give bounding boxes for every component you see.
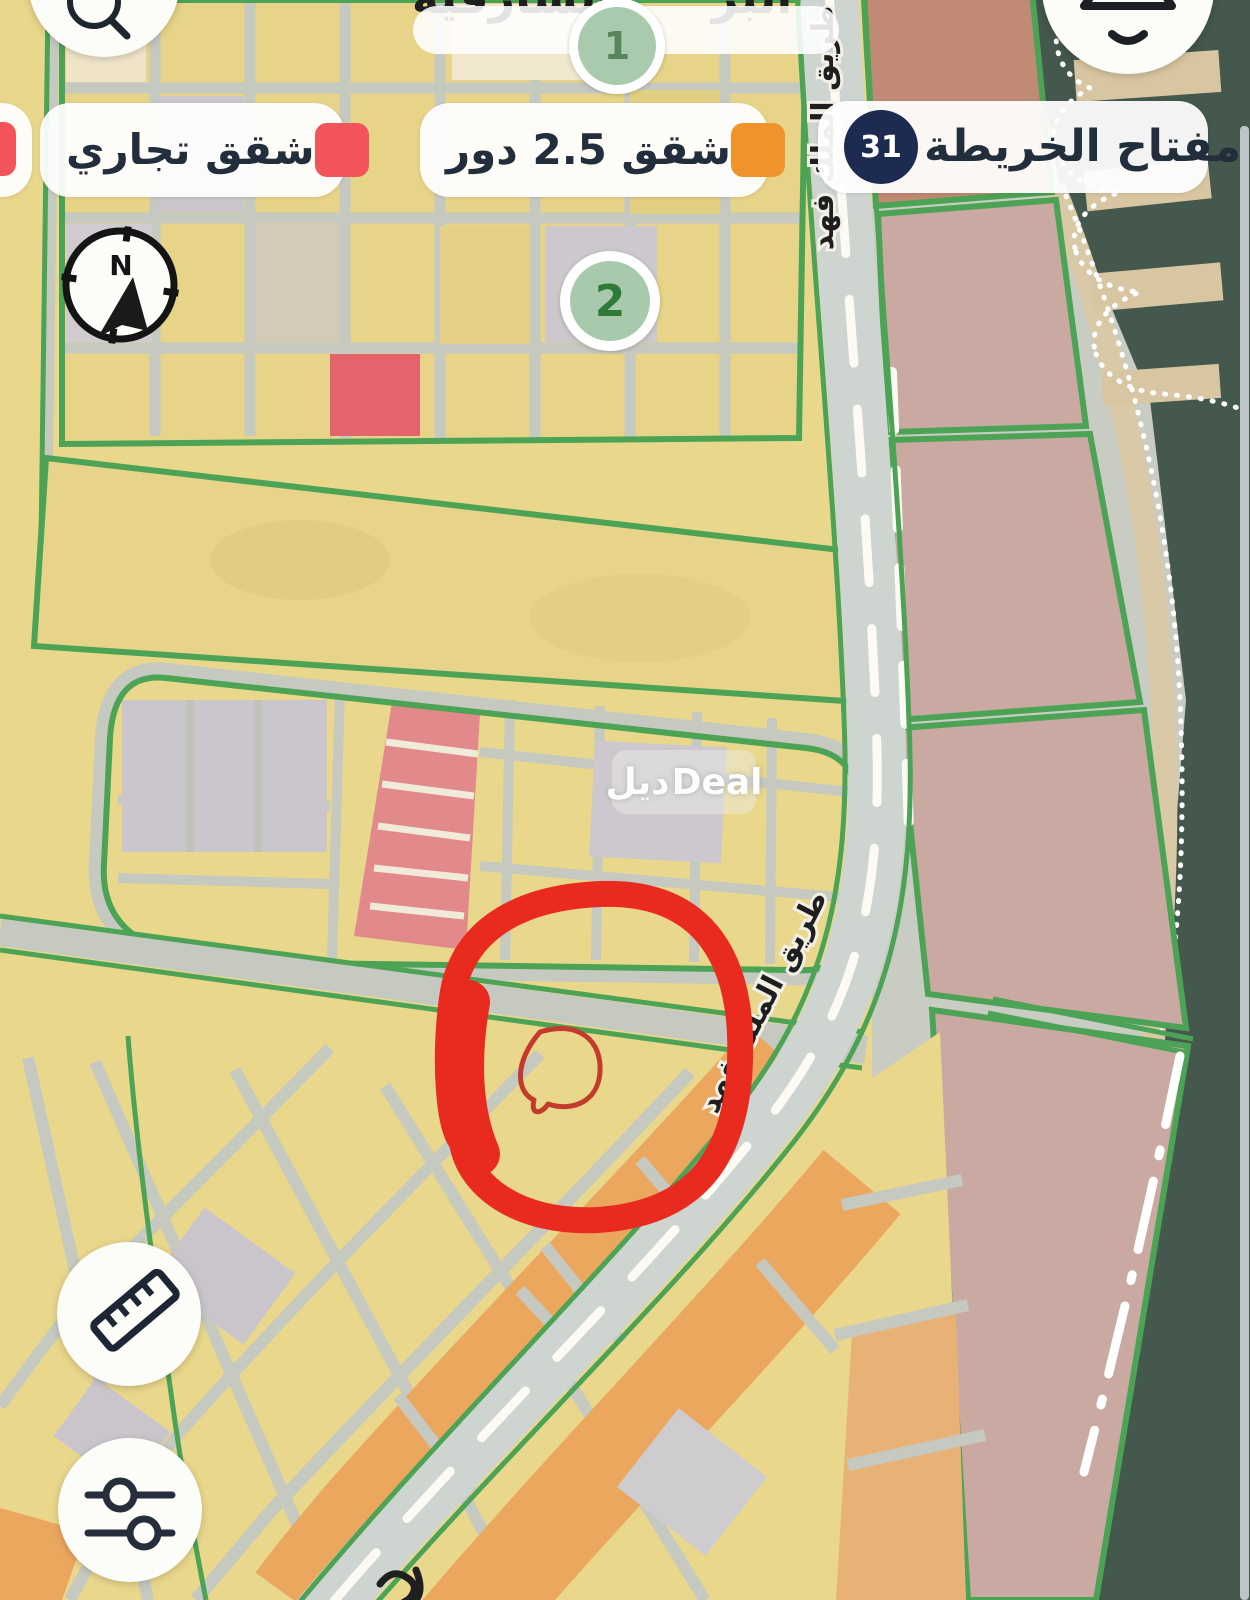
legend-label-25-floor: شقق 2.5 دور bbox=[446, 129, 731, 171]
map-marker-2[interactable]: 2 bbox=[560, 251, 660, 351]
map-app-screen: طريق الملك فهد طريق الملك فهد الشارقية ا… bbox=[0, 0, 1250, 1600]
legend-item-commercial[interactable]: شقق تجاري bbox=[40, 103, 344, 197]
map-style-icon bbox=[1042, 0, 1214, 74]
search-button[interactable] bbox=[28, 0, 180, 57]
filters-button[interactable] bbox=[58, 1438, 202, 1582]
ruler-icon bbox=[57, 1242, 201, 1386]
watermark-arabic: ديل bbox=[605, 762, 669, 803]
compass-icon: N bbox=[58, 223, 182, 347]
map-key-count-badge: 31 bbox=[844, 110, 918, 184]
scrollbar[interactable] bbox=[1240, 126, 1249, 1600]
compass-button[interactable]: N bbox=[58, 223, 182, 347]
legend-item-cut[interactable] bbox=[0, 103, 32, 197]
search-icon bbox=[28, 0, 180, 57]
map-key-label: مفتاح الخريطة bbox=[924, 125, 1241, 169]
compass-north-letter: N bbox=[109, 249, 132, 282]
filters-icon bbox=[58, 1438, 202, 1582]
red-parcel bbox=[330, 354, 420, 436]
legend-swatch-commercial bbox=[315, 123, 369, 177]
map-marker-1-number: 1 bbox=[578, 7, 656, 85]
watermark-latin: Deal bbox=[672, 762, 763, 803]
legend-label-commercial: شقق تجاري bbox=[66, 129, 315, 171]
legend-swatch-cut bbox=[0, 122, 16, 176]
deal-watermark: ديلDeal bbox=[612, 750, 756, 814]
legend-swatch-25-floor bbox=[731, 123, 785, 177]
ruler-button[interactable] bbox=[57, 1242, 201, 1386]
legend-item-25-floor[interactable]: شقق 2.5 دور bbox=[420, 103, 768, 197]
map-marker-1[interactable]: 1 bbox=[569, 0, 665, 94]
map-marker-2-number: 2 bbox=[570, 261, 650, 341]
legend-map-key[interactable]: 31 مفتاح الخريطة bbox=[818, 101, 1208, 193]
map-style-button[interactable] bbox=[1042, 0, 1214, 74]
